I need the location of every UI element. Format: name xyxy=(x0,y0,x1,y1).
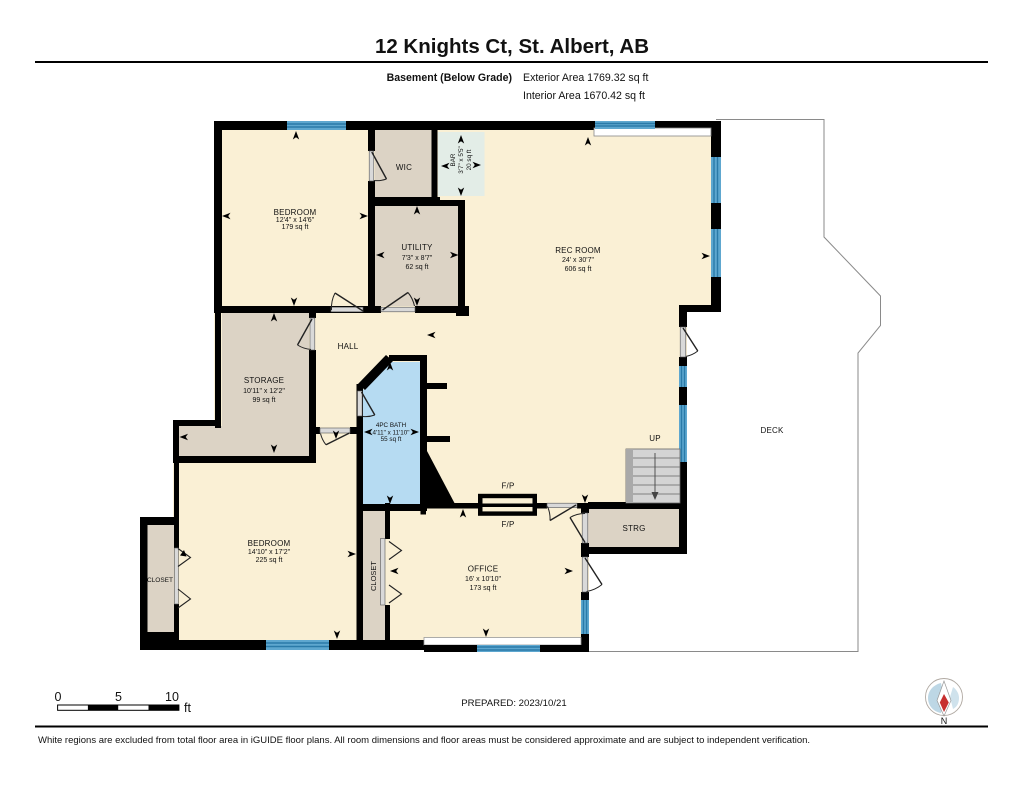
svg-text:White regions are excluded fro: White regions are excluded from total fl… xyxy=(38,735,810,746)
svg-text:N: N xyxy=(941,716,948,726)
svg-text:16' x 10'10": 16' x 10'10" xyxy=(465,576,501,583)
svg-text:UP: UP xyxy=(649,434,661,443)
svg-text:Exterior Area 1769.32 sq ft: Exterior Area 1769.32 sq ft xyxy=(523,72,648,84)
svg-text:BEDROOM: BEDROOM xyxy=(248,539,291,548)
svg-text:10'11" x 12'2": 10'11" x 12'2" xyxy=(243,388,285,395)
svg-text:55 sq ft: 55 sq ft xyxy=(381,436,402,443)
svg-text:CLOSET: CLOSET xyxy=(147,577,173,584)
svg-text:BAR: BAR xyxy=(450,153,457,166)
svg-text:12'4" x 14'6": 12'4" x 14'6" xyxy=(276,217,315,224)
svg-text:99 sq ft: 99 sq ft xyxy=(253,397,276,404)
svg-text:Interior Area 1670.42 sq ft: Interior Area 1670.42 sq ft xyxy=(523,90,645,102)
svg-text:DECK: DECK xyxy=(760,426,783,435)
svg-text:5: 5 xyxy=(115,690,122,704)
svg-text:PREPARED: 2023/10/21: PREPARED: 2023/10/21 xyxy=(461,698,566,709)
svg-text:STRG: STRG xyxy=(622,524,645,533)
svg-text:REC ROOM: REC ROOM xyxy=(555,246,601,255)
svg-text:F/P: F/P xyxy=(501,482,514,491)
svg-text:4PC BATH: 4PC BATH xyxy=(376,422,407,429)
svg-text:0: 0 xyxy=(55,690,62,704)
svg-text:20 sq ft: 20 sq ft xyxy=(466,149,473,170)
svg-text:CLOSET: CLOSET xyxy=(369,561,378,591)
svg-text:F/P: F/P xyxy=(501,520,514,529)
svg-text:3'7" x 5'5": 3'7" x 5'5" xyxy=(458,146,465,174)
svg-text:Basement (Below Grade): Basement (Below Grade) xyxy=(387,72,512,84)
svg-text:UTILITY: UTILITY xyxy=(401,243,433,252)
svg-text:10: 10 xyxy=(165,690,179,704)
svg-text:ft: ft xyxy=(184,701,191,715)
svg-text:HALL: HALL xyxy=(338,342,359,351)
svg-text:7'3" x 8'7": 7'3" x 8'7" xyxy=(402,255,433,262)
svg-text:62 sq ft: 62 sq ft xyxy=(406,264,429,271)
svg-text:STORAGE: STORAGE xyxy=(244,376,284,385)
svg-text:WIC: WIC xyxy=(396,163,412,172)
svg-text:173 sq ft: 173 sq ft xyxy=(470,585,497,592)
svg-text:OFFICE: OFFICE xyxy=(468,565,499,574)
svg-text:24' x 30'7": 24' x 30'7" xyxy=(562,257,595,264)
svg-text:179 sq ft: 179 sq ft xyxy=(282,224,309,231)
svg-text:14'10" x 17'2": 14'10" x 17'2" xyxy=(248,549,291,556)
svg-text:606 sq ft: 606 sq ft xyxy=(565,266,592,273)
svg-text:BEDROOM: BEDROOM xyxy=(274,208,317,217)
svg-text:12 Knights Ct, St. Albert, AB: 12 Knights Ct, St. Albert, AB xyxy=(375,35,649,58)
svg-text:225 sq ft: 225 sq ft xyxy=(256,557,283,564)
